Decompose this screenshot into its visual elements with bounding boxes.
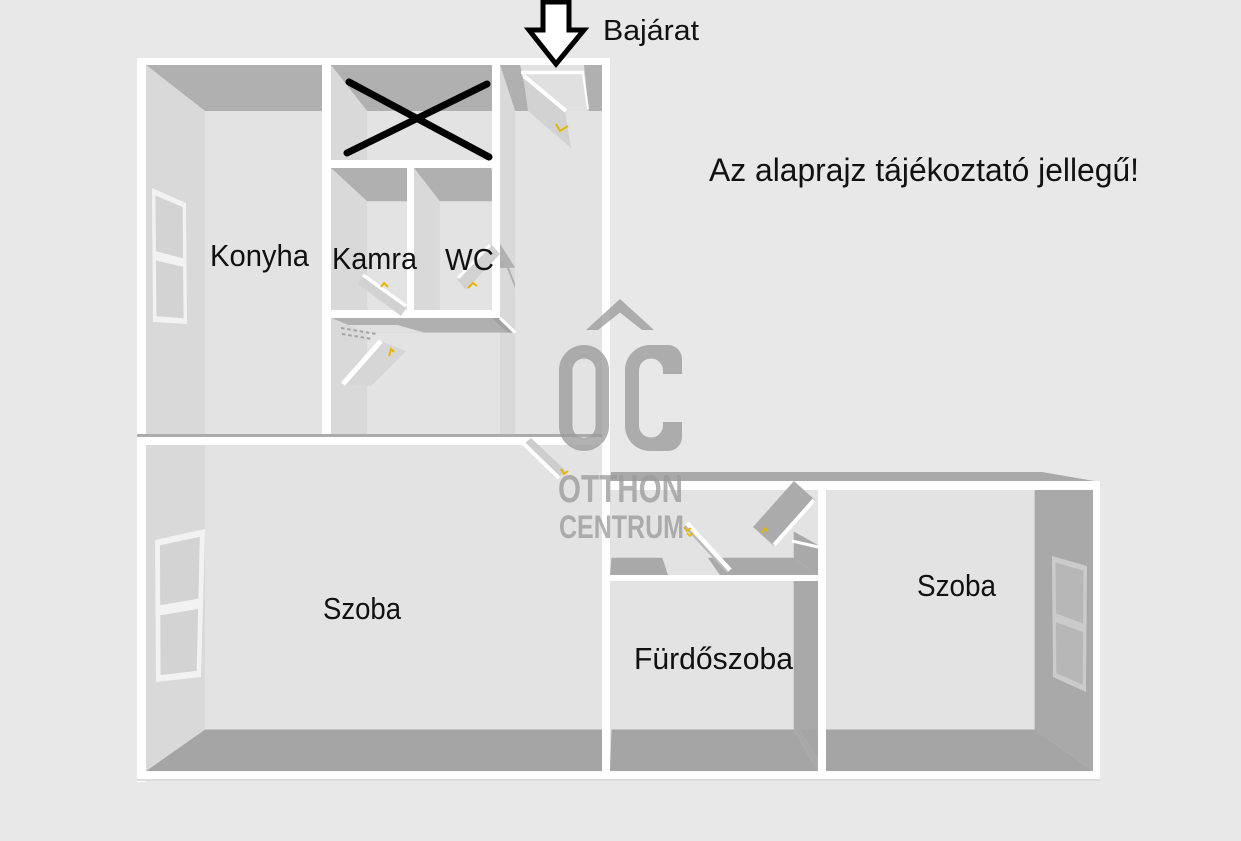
svg-text:Bajárat: Bajárat bbox=[603, 15, 699, 47]
svg-text:Szoba: Szoba bbox=[917, 568, 997, 603]
svg-text:Konyha: Konyha bbox=[210, 238, 310, 273]
svg-text:Az alaprajz tájékoztató jelleg: Az alaprajz tájékoztató jellegű! bbox=[709, 152, 1139, 188]
svg-text:CENTRUM: CENTRUM bbox=[559, 509, 684, 545]
svg-text:Szoba: Szoba bbox=[323, 591, 402, 626]
svg-text:Kamra: Kamra bbox=[332, 241, 418, 276]
svg-text:OTTHON: OTTHON bbox=[558, 468, 683, 511]
svg-text:Fürdőszoba: Fürdőszoba bbox=[634, 641, 794, 676]
svg-text:WC: WC bbox=[445, 242, 494, 277]
